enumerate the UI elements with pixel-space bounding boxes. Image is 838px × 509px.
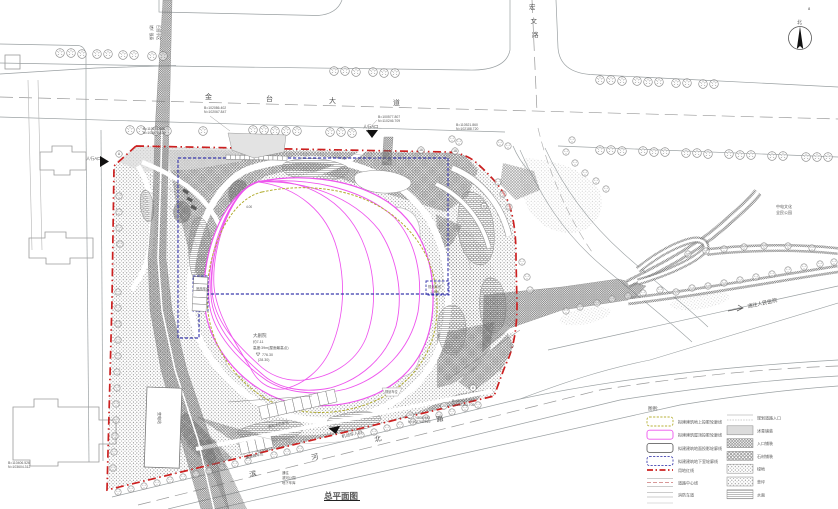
svg-text:N=110246.709: N=110246.709 [378,119,400,123]
svg-text:大剧院: 大剧院 [253,332,267,339]
svg-text:滨河公园: 滨河公园 [282,475,296,480]
svg-text:人行A口: 人行A口 [86,155,101,162]
svg-text:地下车库: 地下车库 [282,480,296,485]
svg-text:20: 20 [442,404,446,408]
svg-text:拟建建筑地上投影轮廓线: 拟建建筑地上投影轮廓线 [678,419,722,425]
svg-text:金: 金 [205,92,212,101]
svg-text:规划车位: 规划车位 [428,284,442,289]
svg-text:18: 18 [453,149,457,153]
svg-text:规划道路入口: 规划道路入口 [757,415,781,421]
svg-text:规划车位: 规划车位 [385,389,399,394]
svg-text:约7-11: 约7-11 [253,339,264,344]
svg-text:道路中心线: 道路中心线 [678,480,698,486]
svg-text:石材铺装: 石材铺装 [757,453,773,459]
svg-text:大: 大 [329,96,336,105]
svg-text:草坪: 草坪 [757,479,765,485]
svg-text:消防车道: 消防车道 [678,492,694,498]
svg-text:4.00: 4.00 [246,205,252,209]
svg-text:M: M [483,204,486,208]
svg-text:入口铺装: 入口铺装 [757,440,773,446]
svg-text:16: 16 [419,148,423,152]
svg-text:全民公园: 全民公园 [776,209,792,215]
svg-text:拟建建筑地下室轮廓线: 拟建建筑地下室轮廓线 [678,458,718,464]
svg-text:拟建建筑屋顶投影轮廓线: 拟建建筑屋顶投影轮廓线 [678,432,722,438]
svg-text:宏: 宏 [529,2,536,11]
svg-text:N=102067.847: N=102067.847 [204,110,226,114]
svg-text:N=102872.429: N=102872.429 [143,131,165,135]
svg-text:用地红线: 用地红线 [678,467,694,473]
svg-text:N=102163.705: N=102163.705 [452,403,474,407]
svg-text:高度:39m(屋面最高点): 高度:39m(屋面最高点) [253,345,289,350]
svg-text:巴营小区: 巴营小区 [156,25,161,40]
svg-text:变电站: 变电站 [157,412,163,424]
svg-text:人行A口: 人行A口 [363,123,378,130]
svg-text:北: 北 [797,19,802,26]
svg-text:诸亻银泰: 诸亻银泰 [149,25,154,40]
svg-text:(28.30): (28.30) [258,358,269,362]
svg-text:中电文化: 中电文化 [776,203,792,209]
svg-text:台: 台 [266,94,273,103]
svg-text:图例:: 图例: [648,405,658,412]
svg-text:总平面图: 总平面图 [324,491,358,501]
svg-text:拟建建筑地面投影轮廓线: 拟建建筑地面投影轮廓线 [678,445,722,451]
svg-text:7: 7 [262,395,264,399]
svg-text:文: 文 [531,16,538,25]
svg-text:通往: 通往 [282,470,289,475]
svg-text:路: 路 [532,30,539,39]
svg-text:-1.000: -1.000 [430,290,439,294]
svg-text:绿地: 绿地 [757,466,765,472]
svg-text:道: 道 [393,98,400,107]
svg-text:20: 20 [408,413,412,417]
svg-text:N=102188.720: N=102188.720 [456,127,478,131]
svg-text:底商车位: 底商车位 [196,286,210,291]
svg-text:776.30: 776.30 [262,353,273,357]
svg-text:沭青铺装: 沭青铺装 [757,427,773,433]
svg-text:N=102768.919: N=102768.919 [408,420,430,424]
svg-text:水面: 水面 [757,491,765,497]
svg-text:N=103604.312: N=103604.312 [8,465,30,469]
